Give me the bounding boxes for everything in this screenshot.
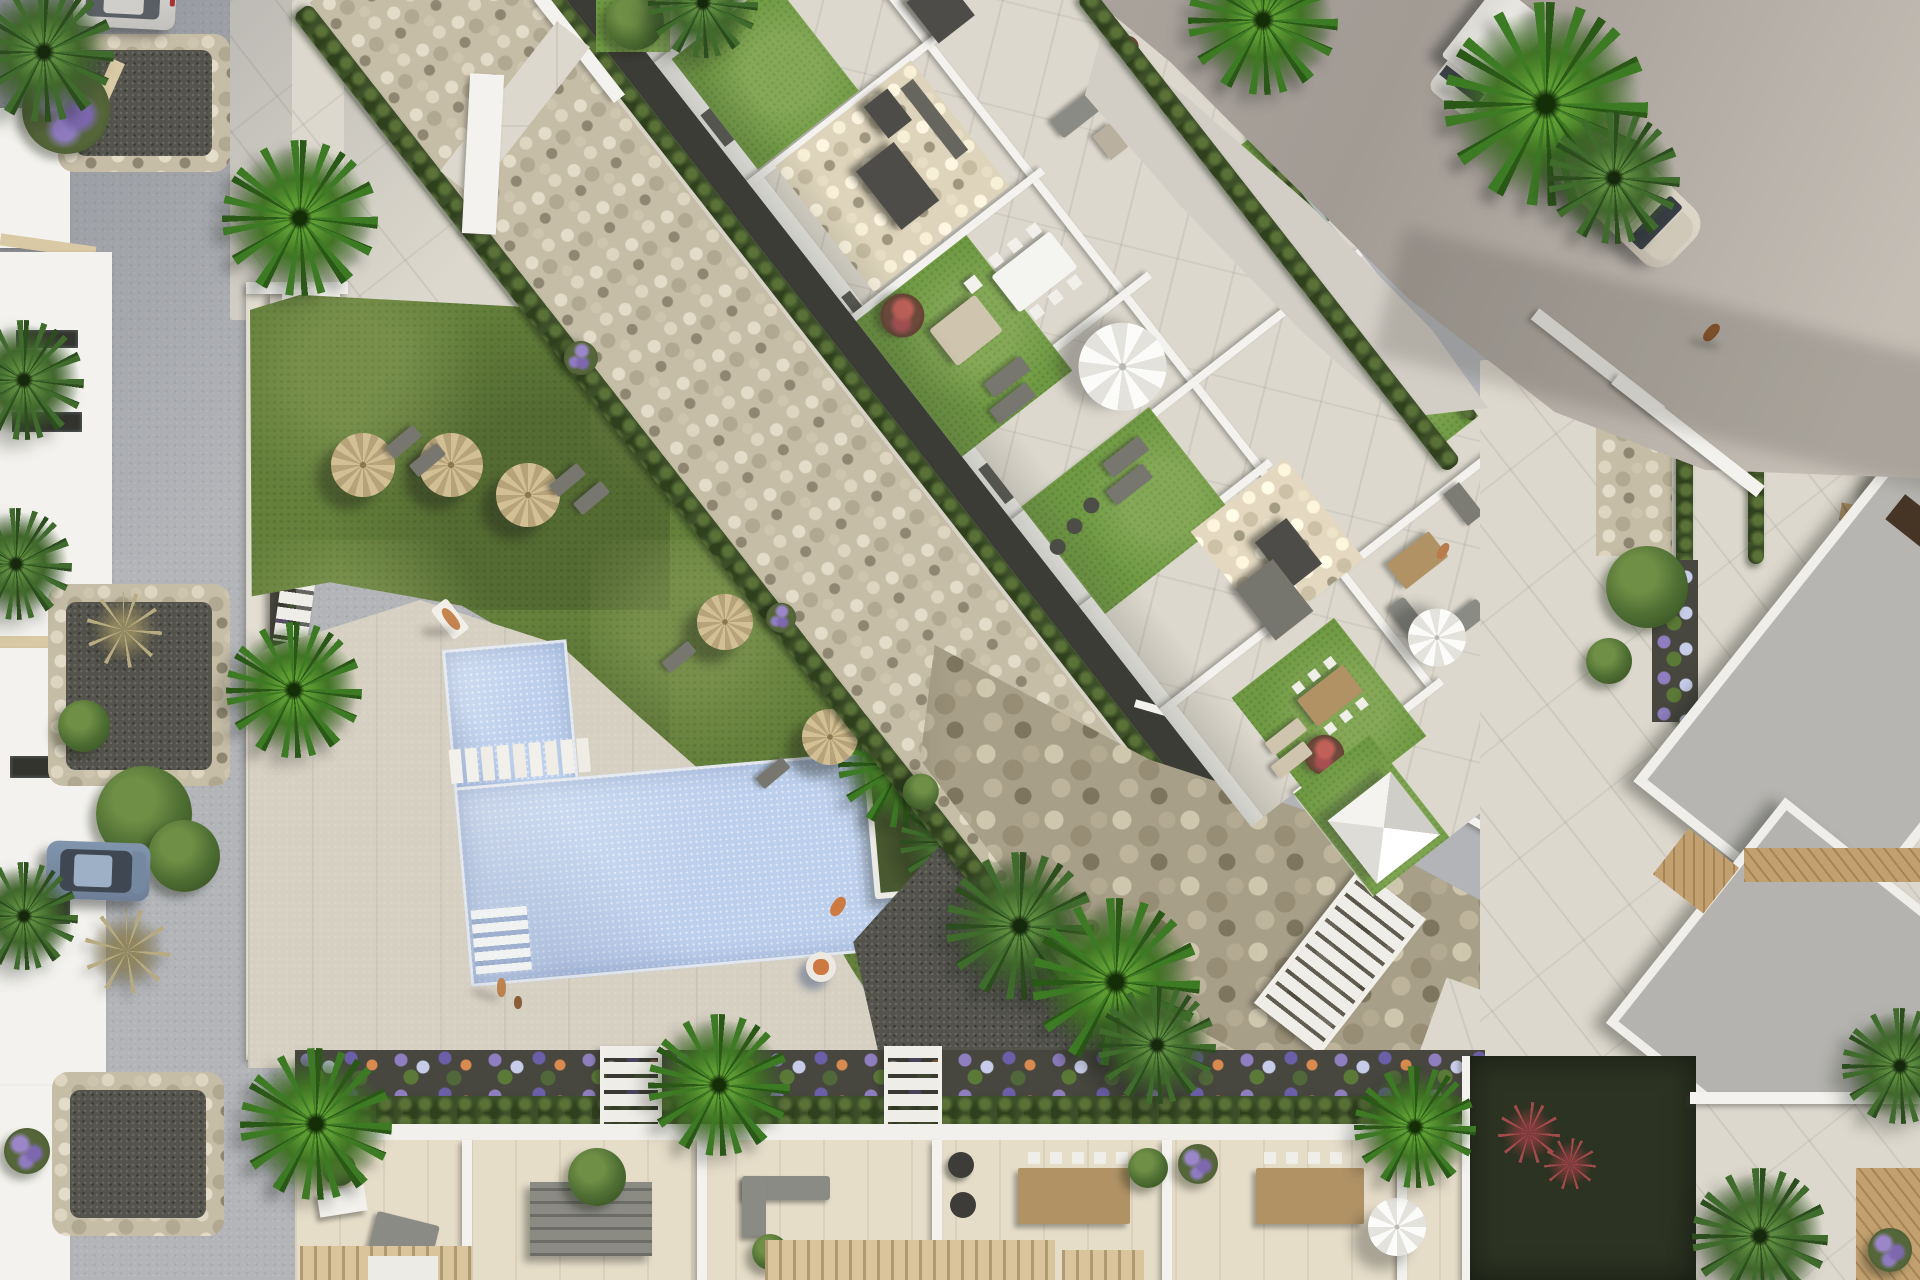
shadow	[420, 628, 454, 636]
walker-dog	[514, 996, 522, 1009]
shrub	[58, 700, 110, 752]
car-hood	[131, 851, 146, 893]
pampas-grass	[86, 592, 162, 668]
palm-tree	[1354, 1066, 1476, 1188]
terrace-divider	[697, 1140, 707, 1280]
patio-tree	[568, 1148, 626, 1206]
shrub	[1586, 638, 1632, 684]
roof-hatch	[1885, 494, 1920, 546]
aerial-render-scene	[0, 0, 1920, 1280]
dining-chairs	[1028, 1152, 1040, 1164]
palm-tree	[1548, 112, 1680, 244]
car-roof	[103, 0, 145, 15]
lounge-set	[742, 1176, 766, 1238]
palm-tree	[1098, 986, 1216, 1104]
straw-parasol	[496, 463, 560, 527]
palm-tree	[648, 1014, 790, 1156]
pool-steps	[471, 906, 532, 975]
terrace-rear-wall	[295, 1124, 1485, 1140]
deck-steps	[884, 1046, 942, 1136]
timber-dining-table	[1256, 1168, 1364, 1224]
terrace-table-below	[368, 1256, 438, 1280]
palm-tree	[240, 1048, 392, 1200]
bed-gravel	[70, 1090, 206, 1218]
pampas-grass	[84, 908, 170, 994]
timber-deck-edge	[1744, 848, 1920, 882]
street-tree	[148, 820, 220, 892]
dining-chairs	[1264, 1152, 1276, 1164]
balcony-plant	[4, 1128, 50, 1174]
patio-plant	[1128, 1148, 1168, 1188]
patio-flowers	[1178, 1144, 1218, 1184]
palm-tree	[222, 140, 378, 296]
pergola-roof	[1062, 1250, 1144, 1280]
large-shrub	[1606, 546, 1688, 628]
patio-flowers	[1868, 1228, 1912, 1272]
red-fern	[1544, 1138, 1596, 1190]
pergola-roof	[765, 1240, 1055, 1280]
deck-walker	[497, 978, 506, 997]
swimmer-with-ring	[813, 959, 829, 975]
palm-tree	[226, 622, 362, 758]
straw-parasol	[331, 433, 395, 497]
timber-dining-table	[1018, 1168, 1130, 1224]
car-taillight	[170, 0, 176, 7]
white-parasol	[1368, 1198, 1426, 1256]
bbq-pots	[948, 1152, 974, 1178]
car-roof	[73, 854, 112, 887]
